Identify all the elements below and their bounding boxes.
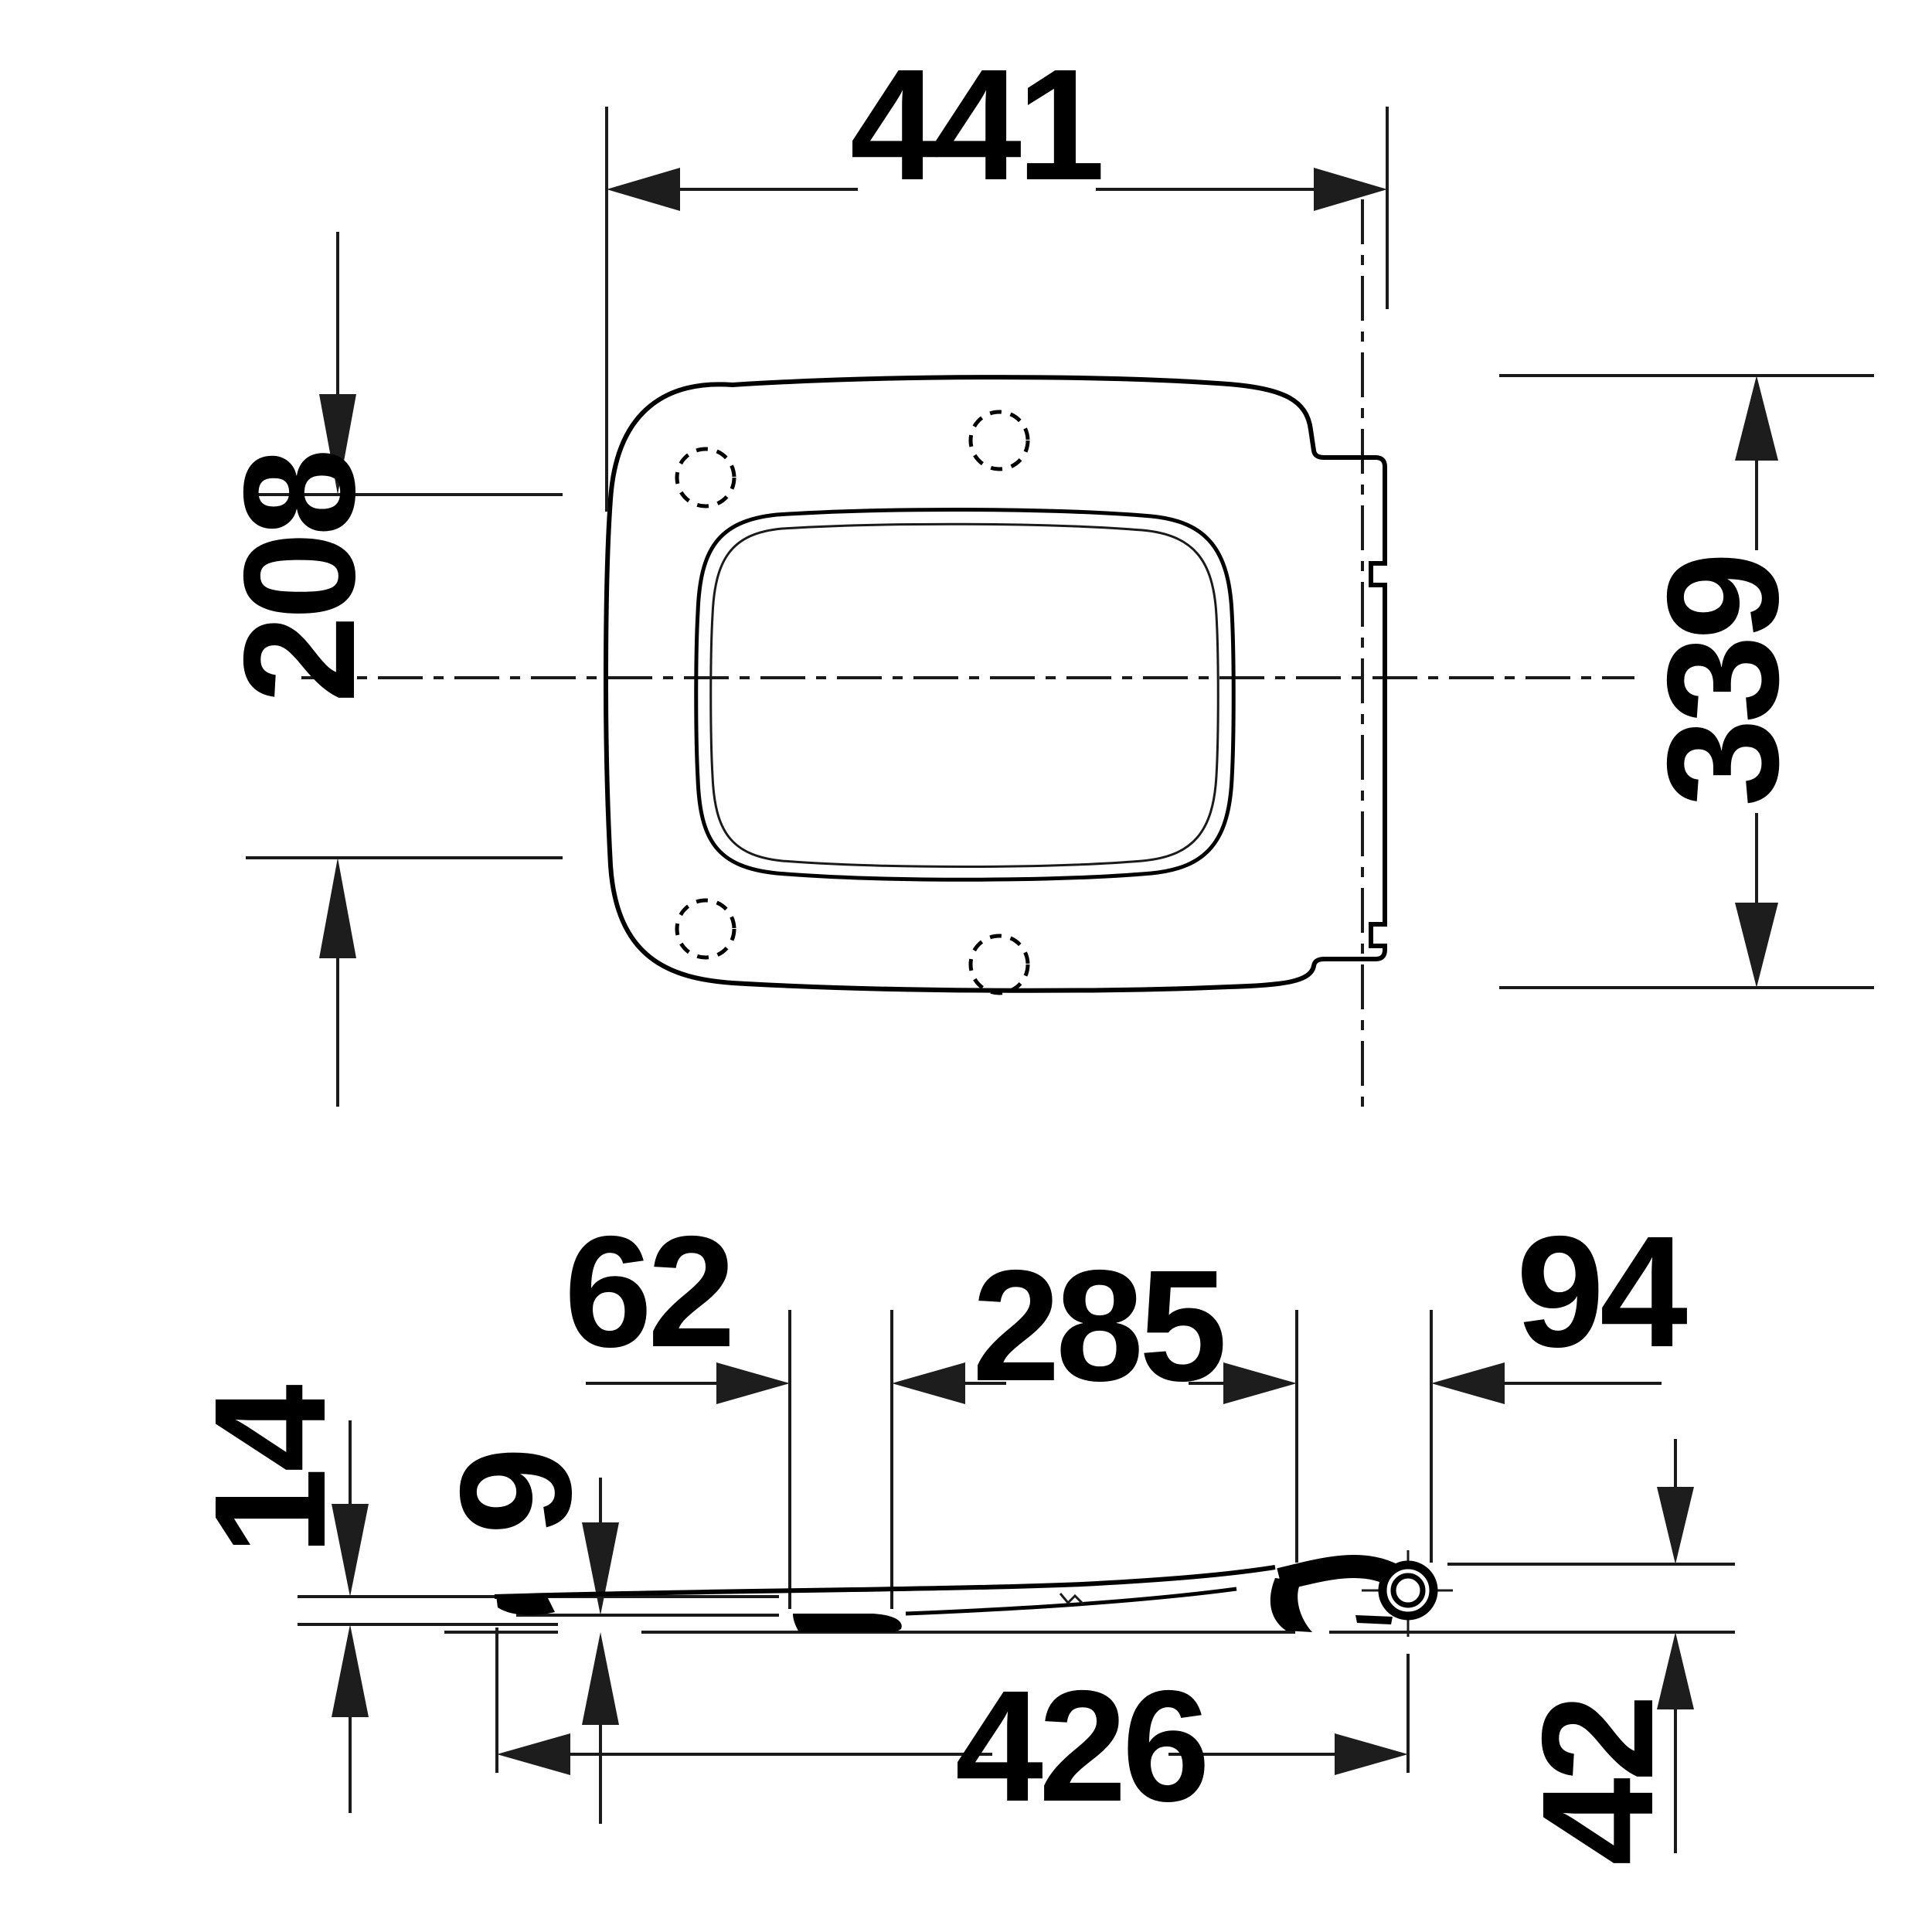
hinge-tail-band [1280,1566,1396,1580]
arrowhead-down [1735,903,1778,988]
rubber-buffer-rear [1270,1578,1312,1632]
dim-285-arrowhead-left [892,1362,965,1404]
dimension-seat-length: 426 [497,1628,1408,1835]
dimension-overall-width: 441 [607,36,1387,512]
arrowhead-right [1335,1733,1408,1775]
dim-label-42: 42 [1509,1699,1686,1866]
dimension-front-section-depth: 208 [211,232,563,1107]
arrowhead-down [582,1522,619,1615]
seat-opening-outer [696,509,1234,879]
dimension-row: 62 285 94 [564,1203,1687,1609]
dim-label-441: 441 [850,36,1101,213]
arrowhead-right [1314,168,1387,211]
toilet-seat-dimension-drawing: 441 208 339 [0,0,1932,1932]
rubber-buffer-front [793,1614,902,1632]
technical-drawing-page: 441 208 339 [0,0,1932,1932]
arrowhead-left [607,168,680,211]
seat-top-edge [495,1567,1275,1597]
dim-label-14: 14 [182,1385,359,1556]
hinge-eye-inner [1393,1576,1423,1605]
dim-label-94: 94 [1516,1203,1687,1380]
seat-opening-inner [711,524,1219,866]
dimension-overall-depth: 339 [1499,376,1874,988]
dim-label-285: 285 [972,1237,1223,1414]
dim-285-arrowhead-right [1223,1362,1297,1404]
fixing-hole-bottom-center [971,936,1028,993]
arrowhead-up [319,858,356,958]
dim-94-arrowhead-left [1431,1362,1505,1404]
arrowhead-up [1657,1632,1694,1709]
dim-label-426: 426 [955,1658,1206,1835]
dim-label-339: 339 [1634,556,1811,807]
dim-label-208: 208 [211,453,388,703]
dimension-seat-thickness: 9 [427,1451,619,1824]
arrowhead-left [497,1733,570,1775]
hinge-base-wedge [1355,1615,1393,1624]
seat-front-tip [496,1594,555,1615]
plan-view: 441 208 339 [211,36,1874,1114]
dim-label-62: 62 [564,1203,731,1380]
seat-profile [495,1550,1453,1637]
arrowhead-up [1735,376,1778,461]
fixing-hole-bottom-left [677,900,734,957]
arrowhead-down [1657,1487,1694,1564]
dim-label-9: 9 [427,1451,604,1535]
side-view: 62 285 94 14 [182,1203,1735,1866]
fixing-hole-top-center [971,412,1028,469]
arrowhead-up [582,1632,619,1725]
fixing-hole-top-left [677,449,734,506]
dimension-hinge-height: 42 [1509,1439,1694,1866]
arrowhead-up [332,1624,369,1717]
dimension-front-height: 14 [182,1385,369,1813]
